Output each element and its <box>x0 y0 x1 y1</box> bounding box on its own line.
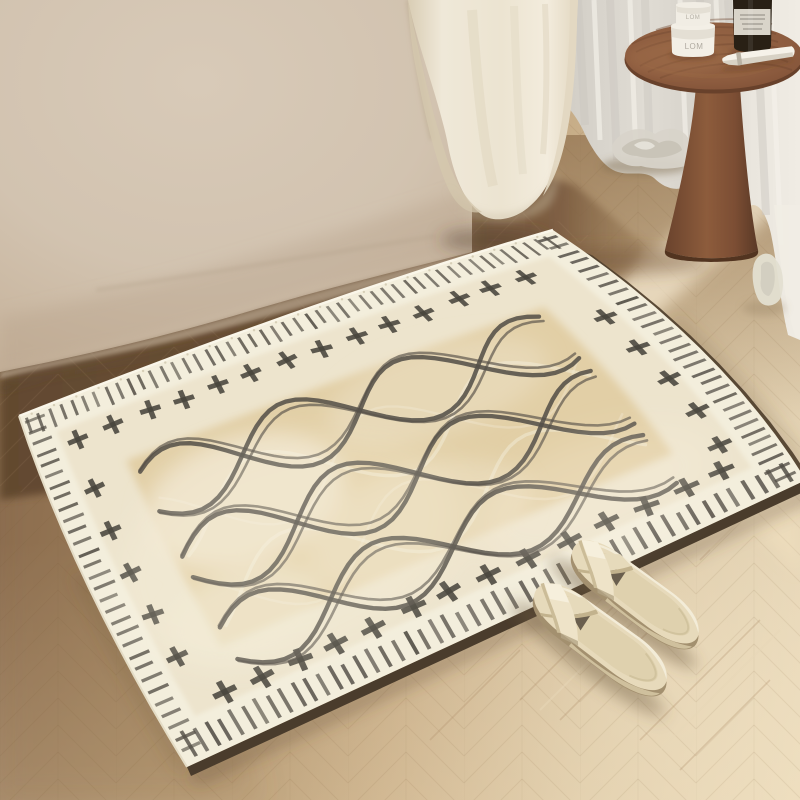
svg-text:LOM: LOM <box>686 15 701 21</box>
svg-text:LOM: LOM <box>685 42 704 51</box>
